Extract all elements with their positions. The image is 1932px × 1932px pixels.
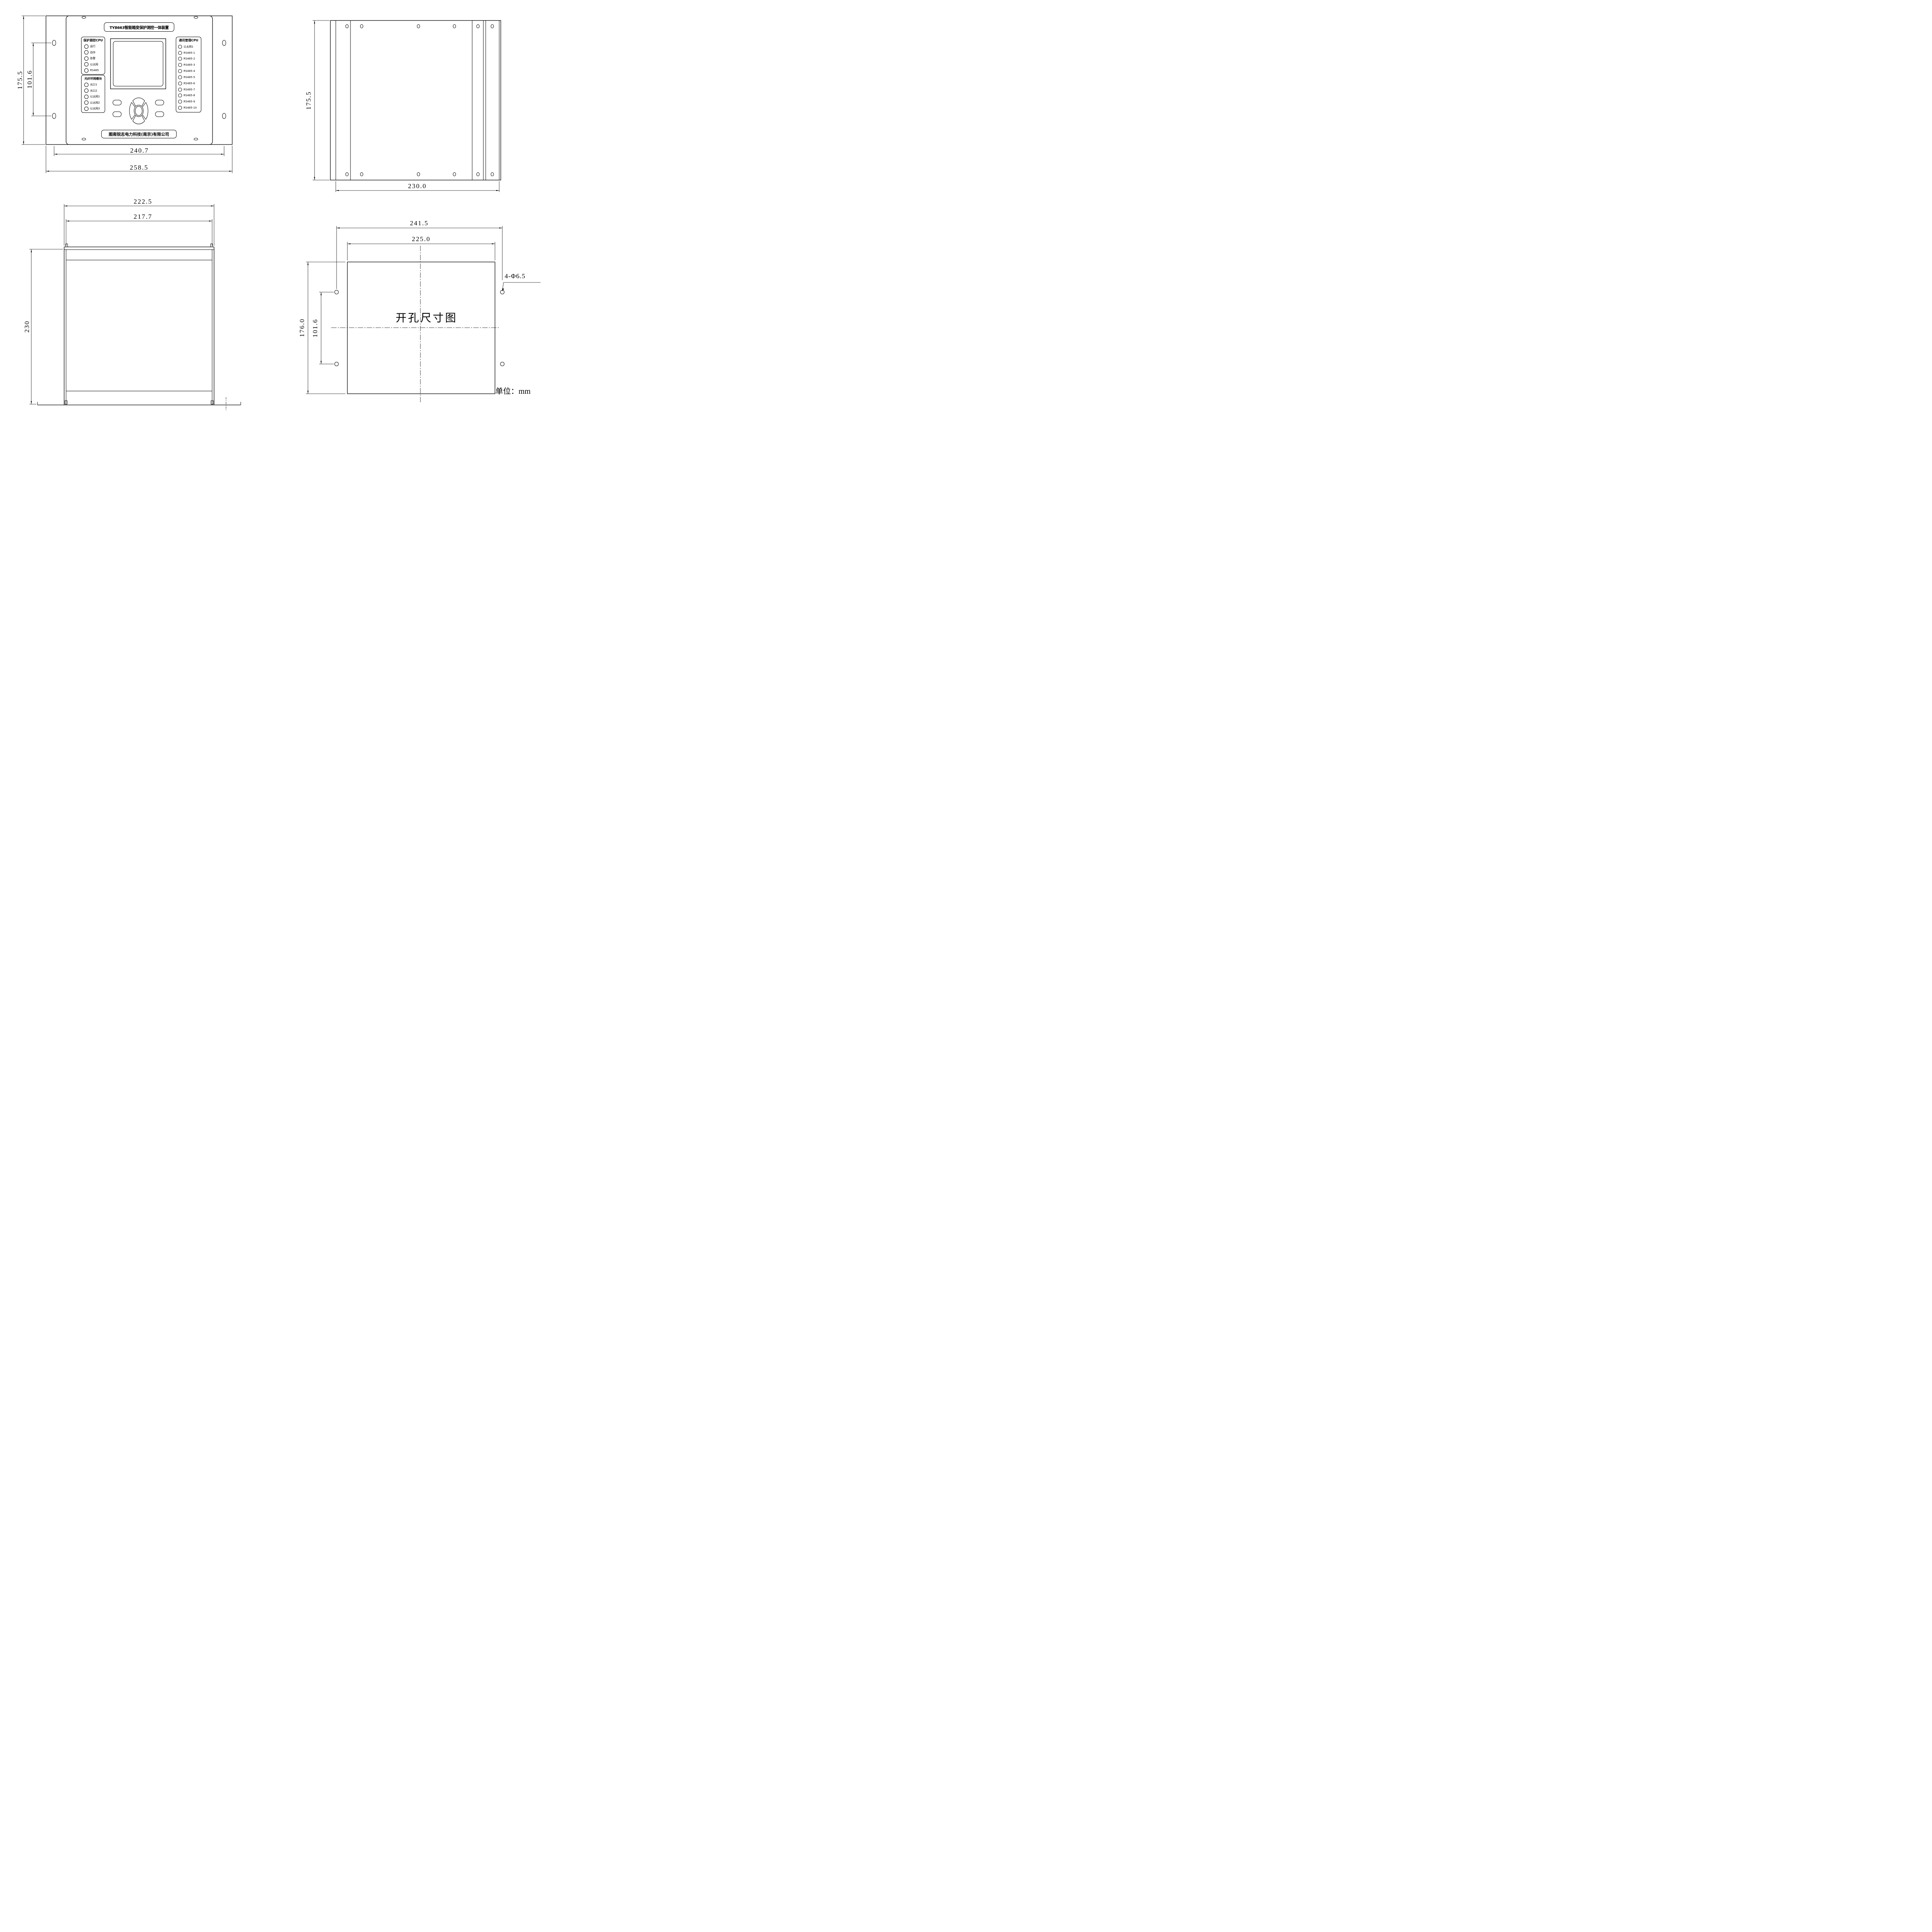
cutout-rectangle bbox=[347, 262, 495, 394]
led-row: 以太网1 bbox=[178, 45, 201, 49]
dim-side-width-inner: 217.7 bbox=[128, 213, 158, 221]
led-row: RS485-3 bbox=[178, 63, 201, 67]
led-label: RS485-5 bbox=[184, 76, 195, 79]
led-label: RS485-9 bbox=[184, 100, 195, 103]
device-title: TY8663智能箱变保护测控一体装置 bbox=[110, 24, 169, 30]
led-row: RS485-4 bbox=[178, 69, 201, 73]
led-row: 运行 bbox=[84, 44, 105, 49]
dim-front-height: 175.5 bbox=[17, 68, 24, 92]
led-label: RS485 bbox=[90, 69, 99, 72]
led-rows: 运行 动作 告警 以太网 RS485 bbox=[82, 43, 105, 74]
led-indicator bbox=[178, 57, 182, 61]
top-view-screws bbox=[346, 25, 494, 176]
led-indicator bbox=[178, 51, 182, 55]
top-view-dimensions bbox=[313, 20, 499, 192]
led-row: 以太网2 bbox=[84, 100, 105, 105]
led-indicator bbox=[84, 56, 88, 61]
led-label: 光口2 bbox=[90, 89, 97, 93]
led-indicator bbox=[84, 83, 88, 87]
led-label: RS485-2 bbox=[184, 57, 195, 60]
led-row: 动作 bbox=[84, 50, 105, 54]
drill-hole bbox=[335, 362, 338, 366]
led-label: RS485-10 bbox=[184, 106, 197, 109]
led-row: RS485-1 bbox=[178, 51, 201, 55]
led-rows: 以太网1 RS485-1 RS485-2 RS485-3 RS485-4 RS4… bbox=[176, 43, 201, 112]
front-view-outline bbox=[46, 16, 232, 145]
led-row: 以太网 bbox=[84, 62, 105, 66]
dim-top-depth: 175.5 bbox=[305, 89, 312, 112]
led-indicator bbox=[178, 88, 182, 92]
led-indicator bbox=[178, 106, 182, 110]
enclosure-top bbox=[330, 20, 501, 180]
led-label: RS485-4 bbox=[184, 70, 195, 73]
dim-top-width: 230.0 bbox=[402, 182, 433, 190]
dim-cutout-height: 176.0 bbox=[299, 316, 306, 339]
led-label: 以太网1 bbox=[184, 45, 193, 49]
led-label: 告警 bbox=[90, 56, 95, 60]
led-indicator bbox=[84, 44, 88, 49]
led-indicator bbox=[84, 88, 88, 93]
led-label: 以太网1 bbox=[90, 95, 100, 99]
drill-hole bbox=[335, 290, 338, 294]
led-indicator bbox=[178, 75, 182, 79]
led-indicator bbox=[178, 69, 182, 73]
led-indicator bbox=[84, 100, 88, 105]
hole-diameter-note: 4-Φ6.5 bbox=[505, 272, 526, 280]
led-indicator bbox=[84, 68, 88, 73]
led-indicator bbox=[84, 95, 88, 99]
unit-note: 单位：mm bbox=[495, 385, 531, 396]
led-row: RS485-7 bbox=[178, 88, 201, 92]
led-row: RS485-9 bbox=[178, 100, 201, 104]
led-indicator bbox=[84, 50, 88, 54]
led-row: RS485-5 bbox=[178, 75, 201, 79]
dim-side-height: 230 bbox=[24, 315, 31, 338]
led-label: 以太网 bbox=[90, 63, 98, 66]
dim-front-hole-spacing-h: 240.7 bbox=[124, 147, 155, 155]
dim-cutout-hole-spacing-h: 241.5 bbox=[404, 219, 435, 227]
led-group-comm-cpu: 通讯管理CPU 以太网1 RS485-1 RS485-2 RS485-3 RS4… bbox=[176, 37, 201, 112]
led-row: 以太网1 bbox=[84, 95, 105, 99]
led-group-header: 保护测控CPU bbox=[82, 37, 105, 43]
led-group-protection-cpu: 保护测控CPU 运行 动作 告警 以太网 RS485 bbox=[81, 37, 105, 75]
engineering-drawing-page: TY8663智能箱变保护测控一体装置 保护测控CPU 运行 动作 告警 以太网 … bbox=[0, 0, 552, 417]
led-indicator bbox=[178, 63, 182, 67]
led-rows: 光口1 光口2 以太网1 以太网2 以太网3 bbox=[82, 81, 105, 112]
led-indicator bbox=[84, 62, 88, 66]
led-row: 光口1 bbox=[84, 83, 105, 87]
drill-hole bbox=[500, 362, 504, 366]
led-label: 以太网2 bbox=[90, 101, 100, 105]
led-row: RS485-10 bbox=[178, 106, 201, 110]
company-box: 图南锐志电力科技(南京)有限公司 bbox=[101, 130, 177, 138]
led-indicator bbox=[178, 45, 182, 49]
device-title-box: TY8663智能箱变保护测控一体装置 bbox=[104, 22, 174, 32]
mounting-hole bbox=[223, 40, 226, 46]
led-label: RS485-6 bbox=[184, 82, 195, 85]
led-indicator bbox=[84, 107, 88, 111]
top-view-outline bbox=[330, 20, 501, 180]
led-row: RS485 bbox=[84, 68, 105, 73]
led-row: 光口2 bbox=[84, 88, 105, 93]
led-group-fiber-ring: 光纤环网模块 光口1 光口2 以太网1 以太网2 以太网3 bbox=[81, 75, 105, 113]
led-label: RS485-1 bbox=[184, 51, 195, 54]
led-row: RS485-6 bbox=[178, 82, 201, 85]
led-label: 以太网3 bbox=[90, 107, 100, 111]
mounting-hole bbox=[53, 113, 56, 119]
led-row: 以太网3 bbox=[84, 107, 105, 111]
mounting-hole bbox=[223, 113, 226, 119]
led-row: RS485-2 bbox=[178, 57, 201, 61]
led-row: RS485-8 bbox=[178, 94, 201, 97]
side-view-dimensions bbox=[29, 204, 214, 404]
dim-cutout-hole-spacing-v: 101.6 bbox=[312, 316, 319, 340]
dim-front-hole-spacing-v: 101.6 bbox=[26, 68, 33, 91]
led-group-header: 通讯管理CPU bbox=[176, 37, 201, 43]
led-row: 告警 bbox=[84, 56, 105, 61]
dim-cutout-width: 225.0 bbox=[406, 235, 437, 243]
cutout-view-label: 开孔尺寸图 bbox=[378, 310, 475, 325]
led-indicator bbox=[178, 82, 182, 85]
led-label: RS485-7 bbox=[184, 88, 195, 91]
led-label: RS485-8 bbox=[184, 94, 195, 97]
dim-front-width: 258.5 bbox=[124, 164, 155, 172]
side-view-outline bbox=[37, 244, 241, 410]
dim-side-width-outer: 222.5 bbox=[128, 198, 158, 206]
led-group-header: 光纤环网模块 bbox=[82, 75, 105, 81]
company-name: 图南锐志电力科技(南京)有限公司 bbox=[109, 131, 169, 137]
led-indicator bbox=[178, 100, 182, 104]
led-indicator bbox=[178, 94, 182, 97]
led-label: 动作 bbox=[90, 51, 95, 54]
led-label: 运行 bbox=[90, 44, 95, 48]
led-label: RS485-3 bbox=[184, 63, 195, 66]
led-label: 光口1 bbox=[90, 83, 97, 87]
mounting-hole bbox=[53, 40, 56, 46]
